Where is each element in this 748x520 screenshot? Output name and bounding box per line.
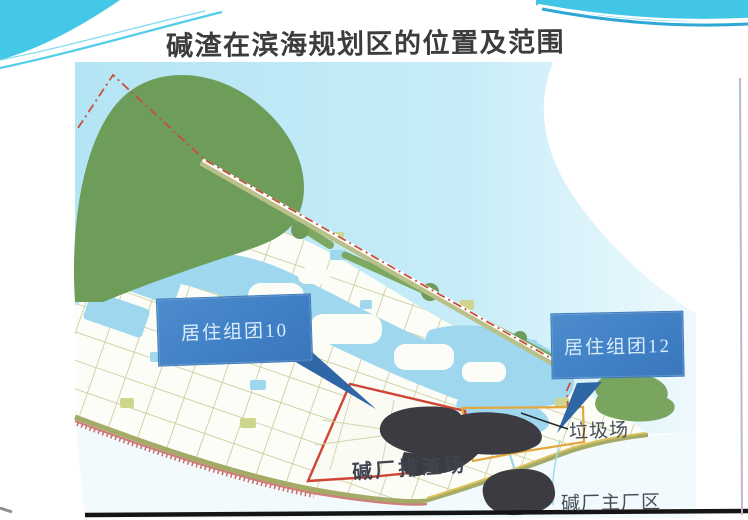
- callout-residential-cluster-10: 居住组团10: [156, 293, 313, 366]
- main-plant-shape: [483, 469, 555, 515]
- callout-label: 居住组团10: [181, 315, 289, 346]
- slide-title: 碱渣在滨海规划区的位置及范围: [166, 20, 586, 63]
- callout-label: 居住组团12: [564, 330, 672, 359]
- scanned-slide: { "page": { "title": "碱渣在滨海规划区的位置及范围" },…: [0, 0, 748, 520]
- callout-residential-cluster-12: 居住组团12: [550, 311, 684, 380]
- scan-mark-bottom-left: [0, 508, 12, 512]
- scan-edge-right: [740, 78, 742, 515]
- label-garbage-site: 垃圾场: [569, 415, 630, 444]
- map-image: [0, 0, 748, 520]
- label-main-plant-area: 碱厂主厂区: [561, 487, 661, 516]
